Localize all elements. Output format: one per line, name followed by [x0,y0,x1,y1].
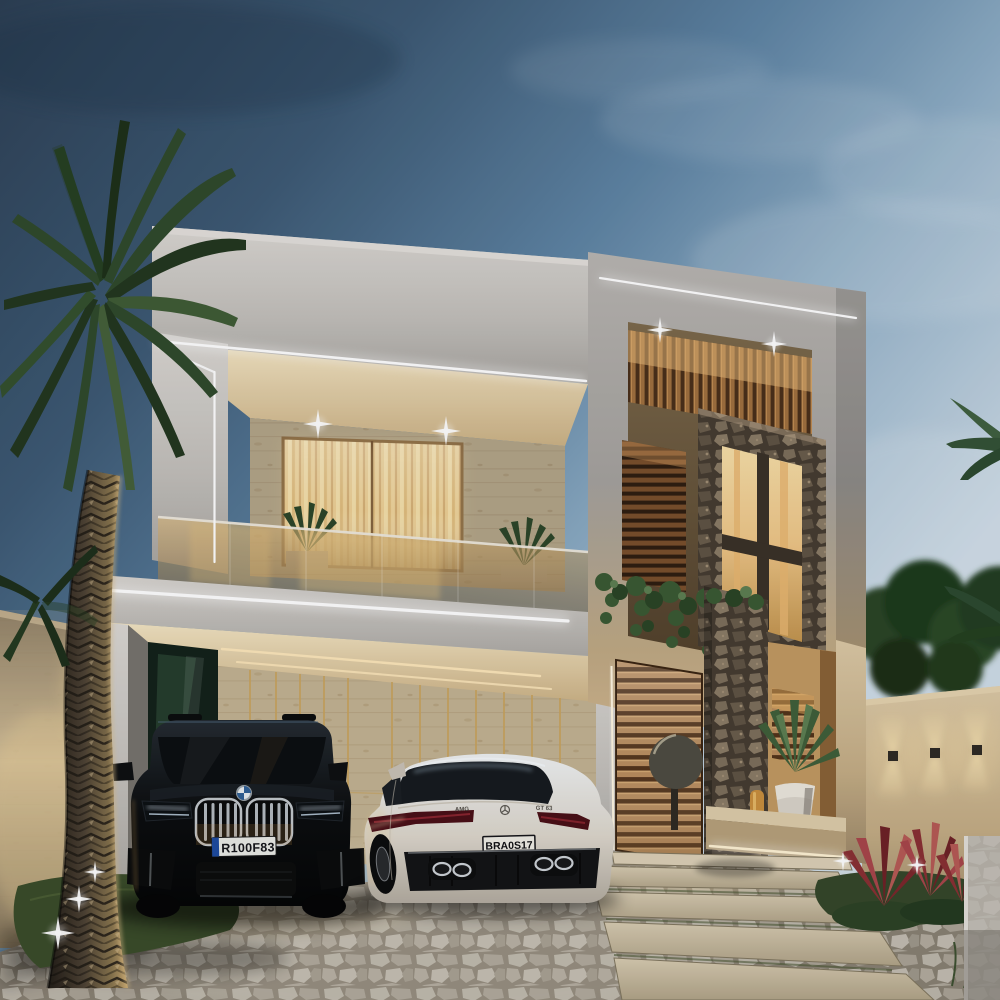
scene-canvas: R100F83 AMG GT 63 BRA0S17 [0,0,1000,1000]
vignette [0,0,1000,1000]
house-exterior-scene: R100F83 AMG GT 63 BRA0S17 [0,0,1000,1000]
